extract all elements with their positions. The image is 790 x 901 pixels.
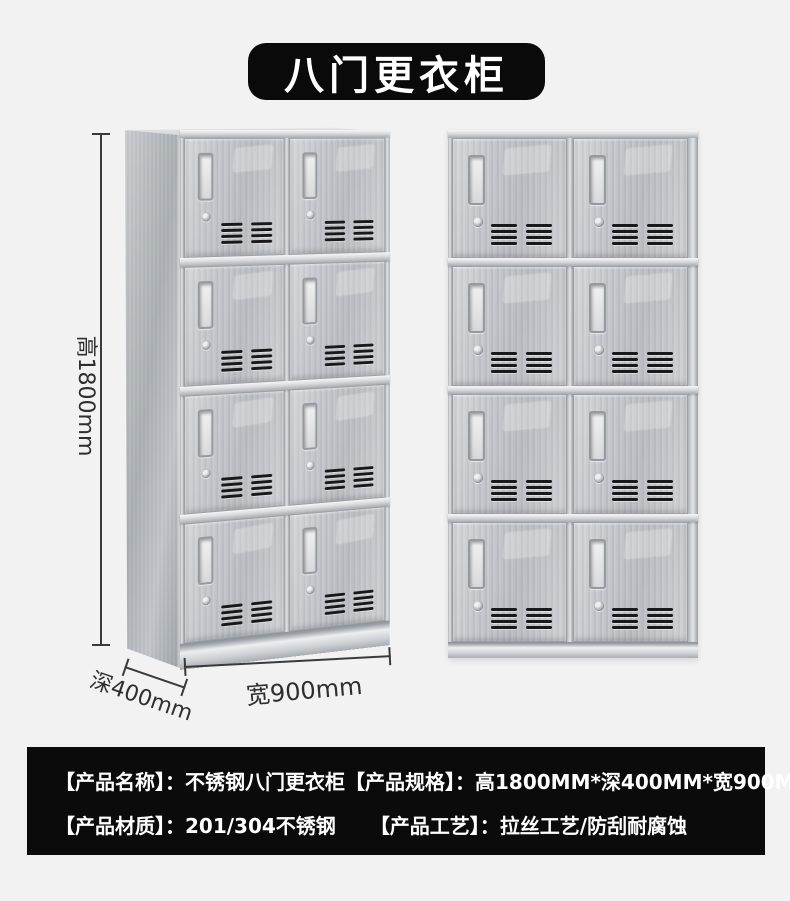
product-material-value: 201/304不锈钢 (185, 814, 336, 838)
vent-slat-group (325, 469, 345, 491)
vent-slat (491, 370, 517, 373)
vent-slat (353, 226, 373, 229)
vent-slat (353, 590, 373, 595)
door-sticker-mark (503, 529, 551, 559)
vent-slat (526, 364, 552, 367)
vent-slat (612, 236, 638, 239)
page-title: 八门更衣柜 (284, 43, 509, 101)
door-sticker-mark (624, 401, 672, 431)
door-vents (612, 352, 673, 373)
door-handle (468, 155, 485, 205)
door-sticker-mark (624, 145, 672, 175)
vent-slat (491, 480, 517, 483)
vent-slat (325, 238, 345, 241)
vent-slat (612, 370, 638, 373)
vent-slat (647, 224, 673, 227)
vent-slat (526, 486, 552, 489)
vent-slat (221, 240, 242, 243)
door-sticker-mark (503, 145, 551, 175)
door-sticker-mark (233, 523, 273, 554)
vent-slat (612, 614, 638, 617)
vent-slat (353, 607, 373, 612)
vent-slat (221, 603, 242, 608)
vent-slat (251, 480, 272, 485)
vent-slat (221, 476, 242, 481)
vent-slat (221, 482, 242, 487)
vent-slat (251, 348, 272, 352)
vent-slat (526, 352, 552, 355)
vent-slat (221, 621, 242, 626)
vent-slat (491, 364, 517, 367)
vent-slat (251, 366, 272, 370)
vent-slat (612, 230, 638, 233)
vent-slat (325, 226, 345, 229)
door-vents (221, 222, 272, 244)
door-handle (198, 536, 214, 585)
vent-slat (612, 352, 638, 355)
vent-slat-group (526, 480, 552, 501)
vent-slat (325, 356, 345, 360)
door-handle (589, 539, 606, 589)
door-lock-icon (594, 473, 604, 483)
vent-slat-group (612, 224, 638, 245)
vent-slat (647, 498, 673, 501)
vent-slat (491, 498, 517, 501)
vent-slat (612, 480, 638, 483)
vent-slat (612, 486, 638, 489)
vent-slat (353, 601, 373, 606)
product-name-value: 不锈钢八门更衣柜 (185, 770, 345, 794)
vent-slat (612, 608, 638, 611)
locker-door (573, 394, 688, 514)
cabinet-top-rail (448, 130, 698, 138)
vent-slat (251, 222, 272, 225)
vent-slat-group (251, 600, 272, 623)
info-line-1: 【产品名称】：不锈钢八门更衣柜【产品规格】：高1800MM*深400MM*宽90… (55, 760, 765, 804)
vent-slat (647, 486, 673, 489)
locker-door (452, 138, 567, 258)
vent-slat (526, 242, 552, 245)
vent-slat-group (647, 224, 673, 245)
vent-slat (526, 614, 552, 617)
door-lock-icon (202, 340, 211, 349)
door-sticker-mark (336, 514, 374, 544)
vent-slat-group (325, 593, 345, 615)
vent-slat (526, 626, 552, 629)
vent-slat (221, 361, 242, 365)
vent-slat (221, 349, 242, 353)
vent-slat (353, 478, 373, 482)
door-vents (491, 352, 552, 373)
door-sticker-mark (624, 529, 672, 559)
vent-slat (251, 360, 272, 364)
door-handle (589, 155, 606, 205)
door-handle (302, 152, 317, 199)
vent-slat-group (526, 224, 552, 245)
vent-slat (251, 228, 272, 231)
vent-slat (526, 370, 552, 373)
vent-slat-group (251, 222, 272, 243)
vent-slat (526, 480, 552, 483)
locker-door (289, 138, 385, 255)
vent-slat (353, 237, 373, 240)
door-lock-icon (202, 596, 211, 606)
vent-slat (251, 354, 272, 358)
door-vents (325, 466, 374, 490)
vent-slat (325, 220, 345, 223)
vent-slat (612, 242, 638, 245)
door-sticker-mark (336, 268, 374, 296)
vent-slat (647, 236, 673, 239)
door-handle (302, 527, 317, 575)
vent-slat (325, 474, 345, 478)
door-handle (589, 283, 606, 333)
door-handle (589, 411, 606, 461)
locker-door (184, 138, 285, 258)
door-lock-icon (306, 335, 314, 344)
vent-slat-group (612, 480, 638, 501)
vent-slat (353, 220, 373, 223)
vent-slat (491, 224, 517, 227)
vent-slat (353, 484, 373, 489)
product-info-bar: 【产品名称】：不锈钢八门更衣柜【产品规格】：高1800MM*深400MM*宽90… (27, 747, 765, 855)
door-lock-icon (473, 473, 483, 483)
locker-door (184, 264, 285, 387)
vent-slat (353, 355, 373, 359)
door-lock-icon (306, 211, 314, 220)
locker-door (289, 506, 385, 631)
door-vents (612, 480, 673, 501)
vent-slat (353, 360, 373, 364)
locker-door (184, 515, 285, 643)
vent-slat (325, 598, 345, 603)
cabinet-front-view (448, 130, 698, 658)
vent-slat (612, 626, 638, 629)
vent-slat (221, 488, 242, 493)
vent-slat (353, 343, 373, 347)
door-lock-icon (306, 585, 314, 595)
vent-slat-group (491, 224, 517, 245)
door-vents (612, 224, 673, 245)
vent-slat (491, 486, 517, 489)
vent-slat-group (325, 220, 345, 241)
vent-slat (491, 620, 517, 623)
product-spec-label: 【产品规格】： (345, 770, 475, 794)
vent-slat (221, 222, 242, 225)
vent-slat (325, 593, 345, 598)
vent-slat (526, 498, 552, 501)
vent-slat (221, 615, 242, 620)
info-line-2: 【产品材质】：201/304不锈钢【产品工艺】：拉丝工艺/防刮耐腐蚀 (55, 804, 765, 848)
vent-slat (353, 472, 373, 476)
cabinet-shelf-rail (448, 258, 698, 266)
locker-door (452, 394, 567, 514)
vent-slat-group (353, 590, 373, 612)
door-lock-icon (594, 345, 604, 355)
door-lock-icon (473, 601, 483, 611)
vent-slat (221, 609, 242, 614)
door-vents (491, 480, 552, 501)
vent-slat (647, 352, 673, 355)
vent-slat (353, 349, 373, 353)
locker-door (452, 266, 567, 386)
height-dimension-label: 高1800mm (72, 330, 104, 462)
vent-slat-group (647, 352, 673, 373)
vent-slat-group (353, 466, 373, 488)
product-craft-value: 拉丝工艺/防刮耐腐蚀 (500, 814, 687, 838)
door-vents (221, 348, 272, 371)
vent-slat (325, 469, 345, 473)
vent-slat (491, 626, 517, 629)
vent-slat (526, 236, 552, 239)
vent-slat (221, 228, 242, 231)
vent-slat-group (491, 352, 517, 373)
locker-door (452, 522, 567, 642)
vent-slat (325, 610, 345, 615)
vent-slat (491, 358, 517, 361)
door-handle (468, 539, 485, 589)
vent-slat (251, 474, 272, 479)
locker-door (289, 384, 385, 506)
door-handle (468, 283, 485, 333)
vent-slat (251, 492, 272, 497)
width-dimension-label: 宽900mm (237, 665, 372, 711)
door-handle (198, 408, 214, 457)
door-sticker-mark (233, 397, 273, 427)
vent-slat-group (353, 343, 373, 364)
vent-slat-group (612, 352, 638, 373)
vent-slat (491, 230, 517, 233)
door-handle (468, 411, 485, 461)
door-vents (325, 590, 374, 615)
vent-slat (251, 612, 272, 617)
vent-slat (251, 606, 272, 611)
locker-door (573, 266, 688, 386)
door-lock-icon (202, 468, 211, 478)
vent-slat (647, 480, 673, 483)
vent-slat (325, 486, 345, 491)
vent-slat (325, 350, 345, 354)
door-lock-icon (594, 601, 604, 611)
vent-slat (325, 344, 345, 348)
vent-slat (647, 608, 673, 611)
door-vents (221, 600, 272, 626)
vent-slat (647, 358, 673, 361)
vent-slat-group (221, 349, 242, 371)
vent-slat (647, 242, 673, 245)
vent-slat (325, 480, 345, 485)
door-handle (302, 277, 317, 324)
door-lock-icon (594, 217, 604, 227)
door-handle (302, 402, 317, 450)
vent-slat (491, 608, 517, 611)
door-handle (198, 153, 214, 201)
vent-slat (647, 370, 673, 373)
door-lock-icon (306, 460, 314, 469)
vent-slat (526, 358, 552, 361)
vent-slat-group (221, 476, 242, 498)
locker-door (573, 522, 688, 642)
vent-slat (353, 595, 373, 600)
cabinet-shelf-rail (448, 514, 698, 522)
door-vents (325, 343, 374, 366)
door-sticker-mark (233, 145, 273, 173)
vent-slat (251, 618, 272, 623)
vent-slat (353, 231, 373, 234)
vent-slat (221, 234, 242, 237)
product-name-label: 【产品名称】： (55, 770, 185, 794)
vent-slat-group (491, 480, 517, 501)
door-vents (325, 220, 374, 241)
vent-slat (251, 234, 272, 237)
door-sticker-mark (624, 273, 672, 303)
door-sticker-mark (336, 144, 374, 171)
vent-slat (251, 239, 272, 242)
product-craft-label: 【产品工艺】： (370, 814, 500, 838)
locker-door (573, 138, 688, 258)
vent-slat (221, 355, 242, 359)
vent-slat (325, 362, 345, 366)
vent-slat-group (647, 608, 673, 629)
locker-door (289, 261, 385, 381)
product-title-banner: 八门更衣柜 (248, 43, 545, 100)
vent-slat (612, 492, 638, 495)
vent-slat-group (491, 608, 517, 629)
vent-slat-group (353, 220, 373, 241)
vent-slat (325, 232, 345, 235)
vent-slat (221, 494, 242, 499)
vent-slat-group (251, 348, 272, 370)
vent-slat-group (612, 608, 638, 629)
locker-door (184, 389, 285, 515)
vent-slat (325, 604, 345, 609)
vent-slat (353, 466, 373, 470)
vent-slat-group (221, 222, 242, 243)
vent-slat (647, 620, 673, 623)
product-spec-value: 高1800MM*深400MM*宽900MM (475, 770, 790, 794)
vent-slat (526, 492, 552, 495)
door-vents (491, 608, 552, 629)
vent-slat-group (221, 603, 242, 626)
vent-slat (612, 224, 638, 227)
vent-slat (612, 498, 638, 501)
vent-slat-group (251, 474, 272, 496)
door-sticker-mark (503, 401, 551, 431)
vent-slat-group (647, 480, 673, 501)
vent-slat (612, 358, 638, 361)
vent-slat (526, 608, 552, 611)
door-vents (491, 224, 552, 245)
vent-slat (647, 364, 673, 367)
vent-slat (647, 492, 673, 495)
door-handle (198, 281, 214, 329)
vent-slat (612, 620, 638, 623)
vent-slat (491, 352, 517, 355)
product-showcase-page: 八门更衣柜 高1800mm 深400mm 宽900mm 【产品名称】：不锈钢八门… (0, 0, 790, 901)
vent-slat (251, 486, 272, 491)
vent-slat (612, 364, 638, 367)
vent-slat (221, 367, 242, 371)
vent-slat-group (325, 344, 345, 365)
vent-slat (491, 242, 517, 245)
door-lock-icon (202, 212, 211, 221)
product-material-label: 【产品材质】： (55, 814, 185, 838)
vent-slat (491, 492, 517, 495)
cabinet-base-rail (448, 642, 698, 658)
cabinet-shelf-rail (448, 386, 698, 394)
door-sticker-mark (503, 273, 551, 303)
vent-slat (491, 614, 517, 617)
door-sticker-mark (233, 271, 273, 300)
vent-slat (526, 224, 552, 227)
vent-slat (526, 230, 552, 233)
cabinet-left-side-panel (125, 130, 180, 668)
door-lock-icon (473, 217, 483, 227)
vent-slat (526, 620, 552, 623)
vent-slat-group (526, 352, 552, 373)
door-vents (221, 474, 272, 499)
vent-slat (647, 230, 673, 233)
vent-slat (491, 236, 517, 239)
door-vents (612, 608, 673, 629)
cabinet-perspective-view (180, 130, 390, 670)
door-sticker-mark (336, 391, 374, 420)
vent-slat (251, 600, 272, 605)
vent-slat (647, 626, 673, 629)
door-lock-icon (473, 345, 483, 355)
vent-slat-group (526, 608, 552, 629)
vent-slat (647, 614, 673, 617)
